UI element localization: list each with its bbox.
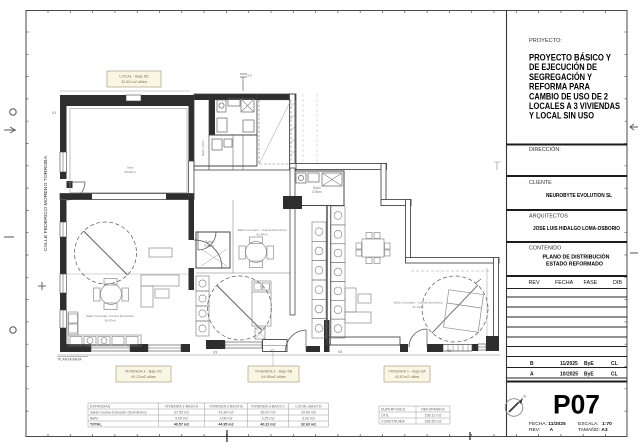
svg-text:FASE: FASE (584, 280, 598, 286)
svg-text:40.22 m2: 40.22 m2 (260, 423, 275, 427)
svg-text:V3: V3 (213, 351, 217, 355)
svg-text:Salón Comedor - Cocina Dormito: Salón Comedor - Cocina Dormitorio (393, 301, 442, 305)
svg-text:ByE: ByE (584, 372, 594, 378)
svg-text:ESTADO REFORMADO: ESTADO REFORMADO (546, 261, 603, 267)
svg-text:ESTANCIAS: ESTANCIAS (90, 405, 111, 409)
svg-text:40.57 m2: 40.57 m2 (174, 423, 189, 427)
svg-text:SUPERFICIES: SUPERFICIES (381, 408, 406, 412)
svg-text:VIVIENDA 3-BAJO C: VIVIENDA 3-BAJO C (251, 405, 285, 409)
svg-text:JOSE LUIS HIDALGO LOMA-OSBORIO: JOSE LUIS HIDALGO LOMA-OSBORIO (533, 226, 621, 232)
svg-text:ByE: ByE (584, 361, 594, 367)
svg-text:P07: P07 (553, 390, 600, 420)
svg-text:29.60m²: 29.60m² (124, 170, 135, 174)
svg-text:36.97m²: 36.97m² (104, 319, 115, 323)
svg-text:PLANO DE DISTRIBUCIÓN: PLANO DE DISTRIBUCIÓN (543, 253, 610, 261)
svg-text:REFORMADO: REFORMADO (421, 408, 445, 412)
svg-text:V3: V3 (447, 349, 451, 353)
svg-text:NEUROBYTE EVOLUTION SL: NEUROBYTE EVOLUTION SL (546, 193, 613, 199)
svg-text:PLANTA BAJA: PLANTA BAJA (58, 358, 82, 362)
svg-text:32.63 m2 útiles: 32.63 m2 útiles (121, 80, 147, 84)
svg-text:6-6: 6-6 (248, 74, 253, 78)
svg-text:CL: CL (611, 372, 618, 378)
svg-text:32.63 m2: 32.63 m2 (301, 423, 316, 427)
svg-text:PROYECTO:: PROYECTO: (529, 38, 562, 44)
svg-text:47.13m²: 47.13m² (412, 305, 423, 309)
svg-text:V3: V3 (338, 350, 342, 354)
svg-text:41.84m²: 41.84m² (256, 233, 267, 237)
svg-text:11/2025: 11/2025 (560, 361, 578, 367)
svg-text:29.60 m2: 29.60 m2 (301, 411, 316, 415)
svg-text:REV: A: REV: A (529, 427, 554, 433)
svg-text:LOCAL-BAJO D: LOCAL-BAJO D (296, 405, 322, 409)
svg-text:REV: REV (529, 280, 540, 286)
svg-text:VIVIENDA 1-BAJO A: VIVIENDA 1-BAJO A (165, 405, 199, 409)
svg-text:40.22m2 útiles: 40.22m2 útiles (131, 375, 156, 379)
svg-text:3.03 m2: 3.03 m2 (302, 417, 315, 421)
svg-text:44.95 m2: 44.95 m2 (218, 423, 233, 427)
svg-text:VIVIENDA 1 - Bajo 5A: VIVIENDA 1 - Bajo 5A (388, 370, 426, 374)
svg-text:FECHA: 11/2025: FECHA: 11/2025 (529, 421, 566, 427)
svg-text:CONTENIDO: CONTENIDO (529, 246, 561, 252)
svg-text:Salón Comedor - Cocina Dormito: Salón Comedor - Cocina Dormitorio (237, 228, 286, 232)
svg-text:158.12 m2: 158.12 m2 (425, 414, 442, 418)
svg-text:36.97 m2: 36.97 m2 (261, 411, 276, 415)
svg-text:DIRECCIÓN:: DIRECCIÓN: (529, 146, 561, 153)
svg-text:10/2025: 10/2025 (560, 372, 578, 378)
svg-text:3.06m²: 3.06m² (312, 190, 322, 194)
svg-text:FECHA: FECHA (555, 280, 574, 286)
svg-text:VIVIENDA 2 - Bajo 5B: VIVIENDA 2 - Bajo 5B (255, 370, 293, 374)
svg-text:CLIENTE: CLIENTE (529, 180, 552, 186)
svg-text:CL: CL (611, 361, 618, 367)
svg-text:VIVIENDA 2-BAJO B: VIVIENDA 2-BAJO B (209, 405, 243, 409)
svg-text:CALLE FEDERICO MORENO TORROBA: CALLE FEDERICO MORENO TORROBA (43, 155, 49, 251)
svg-text:ARQUITECTOS: ARQUITECTOS (529, 214, 568, 220)
svg-text:TOTAL: TOTAL (90, 423, 102, 427)
svg-text:V2: V2 (270, 349, 274, 353)
svg-text:N: N (524, 395, 527, 399)
svg-text:A: A (530, 372, 534, 378)
svg-text:Salón Comedor- Cocina Dormitor: Salón Comedor- Cocina Dormitorio (86, 314, 134, 318)
svg-text:ÚTIL: ÚTIL (381, 413, 389, 418)
svg-text:LOCAL - Bajo 5D: LOCAL - Bajo 5D (119, 75, 148, 79)
svg-text:41.84 m2: 41.84 m2 (219, 411, 234, 415)
svg-text:3.05 m2: 3.05 m2 (175, 417, 188, 421)
svg-text:ESCALA: 1:70: ESCALA: 1:70 (578, 421, 612, 427)
svg-text:43.57m2 útiles: 43.57m2 útiles (395, 375, 420, 379)
svg-text:3.25 m2: 3.25 m2 (262, 417, 275, 421)
svg-text:Baño 3.0m²: Baño 3.0m² (201, 140, 205, 156)
svg-text:DIB: DIB (613, 280, 622, 286)
svg-text:Salón cocina-Comedor (Dormitor: Salón cocina-Comedor (Dormitorio) (90, 411, 147, 415)
svg-text:Sala: Sala (127, 166, 133, 170)
svg-text:B: B (530, 361, 534, 367)
svg-text:3.06 m2: 3.06 m2 (220, 417, 233, 421)
svg-text:CONSTRUIDA: CONSTRUIDA (381, 420, 405, 424)
svg-text:186.50 m2: 186.50 m2 (425, 420, 442, 424)
svg-text:Baño: Baño (90, 417, 98, 421)
svg-text:V1: V1 (52, 111, 56, 115)
svg-text:TAMAÑO: A3: TAMAÑO: A3 (578, 426, 608, 433)
svg-text:37.55 m2: 37.55 m2 (174, 411, 189, 415)
svg-text:44.95m2 útiles: 44.95m2 útiles (261, 375, 286, 379)
svg-text:VIVIENDA 3 - Bajo 5C: VIVIENDA 3 - Bajo 5C (125, 370, 163, 374)
